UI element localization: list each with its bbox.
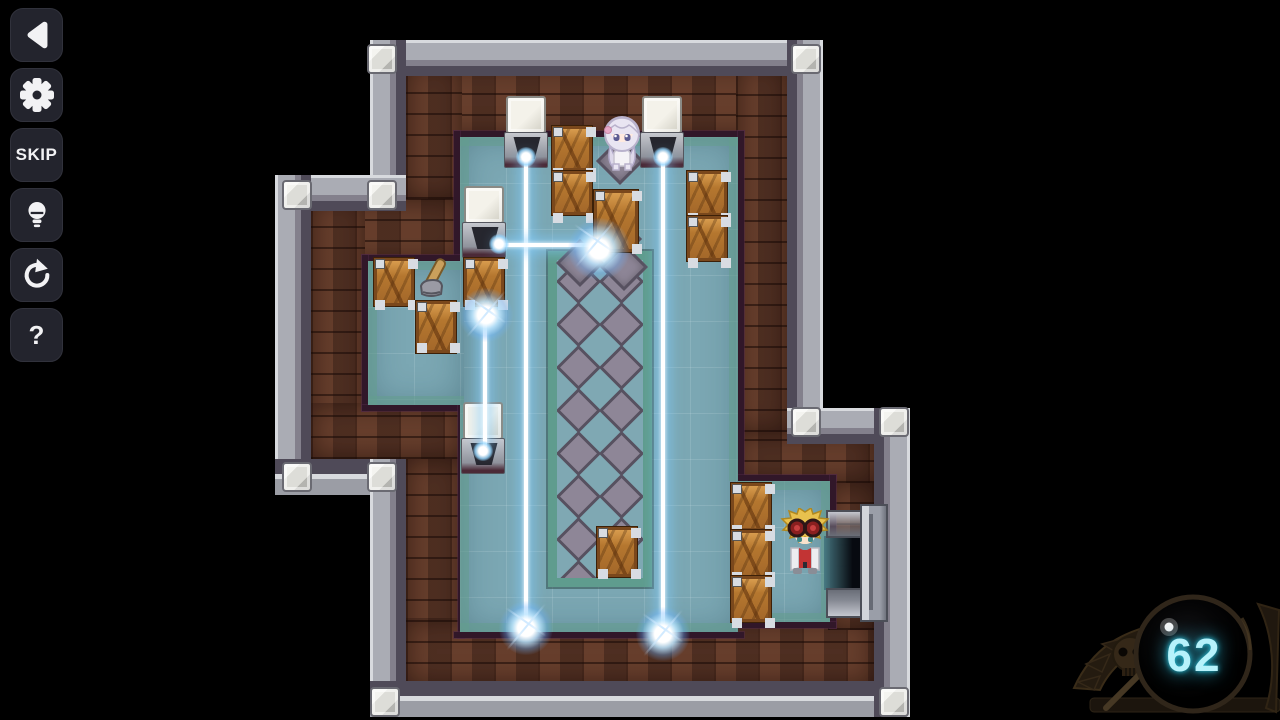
corner-stone xyxy=(879,687,909,717)
crate xyxy=(597,527,637,577)
floor-edging xyxy=(460,137,738,146)
hint-counter-emblem: 62 xyxy=(1072,588,1280,720)
lightbulb-icon xyxy=(19,197,55,233)
laser-impact-spark xyxy=(636,607,690,661)
character-blonde-goggles[interactable] xyxy=(779,508,831,582)
crate xyxy=(731,530,771,578)
back-arrow-icon xyxy=(18,16,56,54)
crate xyxy=(374,258,414,306)
help-label: ? xyxy=(29,320,45,351)
restart-arrow-icon xyxy=(19,257,55,293)
laser-impact-spark xyxy=(499,601,553,655)
corner-stone xyxy=(367,44,397,74)
stone-band-top xyxy=(370,40,823,76)
laser-beam-vertical-left xyxy=(524,160,528,630)
emitter-glow xyxy=(653,147,673,167)
hammer-item[interactable] xyxy=(413,256,455,300)
floor-edging xyxy=(368,396,464,405)
emitter-glow xyxy=(516,147,536,167)
corner-stone xyxy=(282,462,312,492)
laser-impact-spark xyxy=(459,288,513,342)
corner-stone xyxy=(367,462,397,492)
stone-band-left-lower xyxy=(370,459,406,717)
crate xyxy=(731,576,771,622)
crate xyxy=(552,171,592,215)
emitter-back xyxy=(464,186,504,224)
laser-beam-vertical-right xyxy=(661,160,665,636)
corner-stone xyxy=(791,407,821,437)
crate xyxy=(416,301,456,353)
wall-edge xyxy=(362,405,464,411)
stone-band-right-upper xyxy=(787,40,823,432)
emitter-glow xyxy=(473,441,493,461)
emitter-back xyxy=(506,96,546,134)
crate xyxy=(552,126,592,171)
corner-stone xyxy=(791,44,821,74)
wall-brick-alcove-bottom xyxy=(311,403,462,459)
crate xyxy=(687,216,727,261)
skip-button[interactable]: SKIP xyxy=(10,128,63,182)
crate xyxy=(731,483,771,531)
stone-band-bottom xyxy=(370,681,910,717)
stone-band-alcove-left xyxy=(275,175,311,495)
help-button[interactable]: ? xyxy=(10,308,63,362)
wall-edge xyxy=(454,632,744,638)
corner-stone xyxy=(879,407,909,437)
settings-button[interactable] xyxy=(10,68,63,122)
corner-stone xyxy=(370,687,400,717)
laser-impact-spark xyxy=(568,218,630,280)
gear-icon xyxy=(17,75,57,115)
emitter-glow xyxy=(489,234,509,254)
wall-edge xyxy=(738,131,744,481)
corner-stone xyxy=(282,180,312,210)
skip-label: SKIP xyxy=(16,145,58,165)
exit-door-pillar xyxy=(860,504,888,622)
back-button[interactable] xyxy=(10,8,63,62)
hint-button[interactable] xyxy=(10,188,63,242)
emitter-back xyxy=(642,96,682,134)
wall-edge xyxy=(738,622,836,628)
hint-counter-value: 62 xyxy=(1148,628,1240,682)
floor-edging xyxy=(729,137,738,481)
corner-stone xyxy=(367,180,397,210)
character-silver-haired-girl[interactable] xyxy=(600,112,644,176)
game-screen: SKIP ? xyxy=(0,0,1280,720)
crate xyxy=(687,171,727,216)
restart-button[interactable] xyxy=(10,248,63,302)
